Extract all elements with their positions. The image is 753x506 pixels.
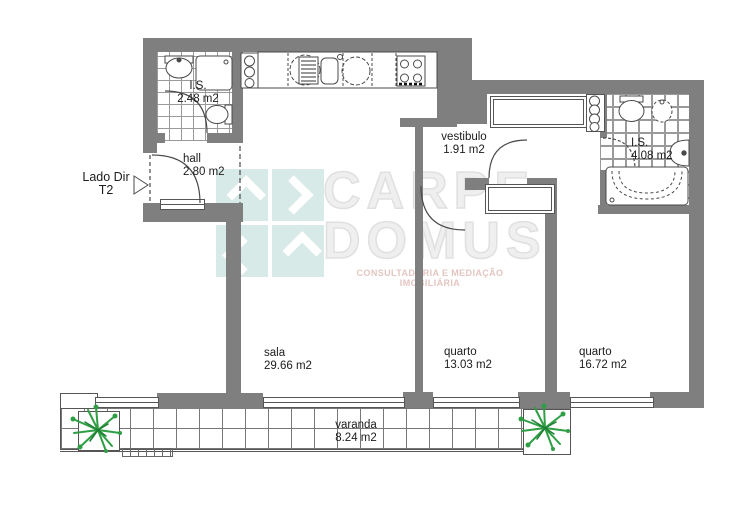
room-label-vestibulo: vestibulo 1.91 m2 — [428, 131, 500, 156]
toilet-icon — [619, 96, 644, 122]
room-name: vestibulo — [428, 131, 500, 144]
stove-icon — [397, 56, 425, 86]
room-label-sala: sala 29.66 m2 — [264, 347, 312, 372]
kitchen-fixtures — [241, 52, 437, 88]
room-area: 16.72 m2 — [579, 359, 627, 372]
room-area: 29.66 m2 — [264, 360, 312, 373]
door-arc-quarto1 — [421, 186, 465, 230]
floor-plan: CARPE DOMUS CONSULTADORIA E MEDIAÇÃO IMO… — [0, 0, 753, 506]
room-area: 8.24 m2 — [327, 432, 385, 445]
unit-label: Lado Dir T2 — [80, 171, 132, 197]
room-area: 4.08 m2 — [631, 150, 673, 163]
room-name: quarto — [444, 346, 492, 359]
tall-unit-shelves-icon — [245, 56, 255, 88]
room-area: 1.91 m2 — [428, 144, 500, 157]
room-name: I.S. — [172, 80, 224, 93]
room-label-is-small: I.S. 2.48 m2 — [172, 80, 224, 105]
plant-icon — [519, 404, 571, 452]
plant-icon — [71, 405, 123, 454]
room-label-is-large: I.S. 4.08 m2 — [631, 137, 673, 162]
room-name: quarto — [579, 346, 627, 359]
room-name: I.S. — [631, 137, 673, 150]
room-area: 2.48 m2 — [172, 93, 224, 106]
orientation-arrow-icon — [134, 176, 148, 194]
room-name: sala — [264, 347, 312, 360]
room-area: 2.80 m2 — [183, 166, 225, 179]
dish-drainer-icon — [299, 57, 318, 84]
room-label-varanda: varanda 8.24 m2 — [327, 419, 385, 444]
room-label-hall: hall 2.80 m2 — [183, 153, 225, 178]
washbasin-icon — [165, 56, 193, 78]
room-label-quarto1: quarto 13.03 m2 — [444, 346, 492, 371]
bathtub-icon — [606, 167, 688, 205]
room-name: varanda — [327, 419, 385, 432]
room-label-quarto2: quarto 16.72 m2 — [579, 346, 627, 371]
toilet-icon — [206, 105, 232, 124]
unit-label-line2: T2 — [80, 184, 132, 197]
bidet-icon — [652, 100, 672, 122]
shelf-column-icon — [590, 96, 600, 132]
washbasin-icon — [670, 140, 689, 166]
room-area: 13.03 m2 — [444, 359, 492, 372]
room-name: hall — [183, 153, 225, 166]
